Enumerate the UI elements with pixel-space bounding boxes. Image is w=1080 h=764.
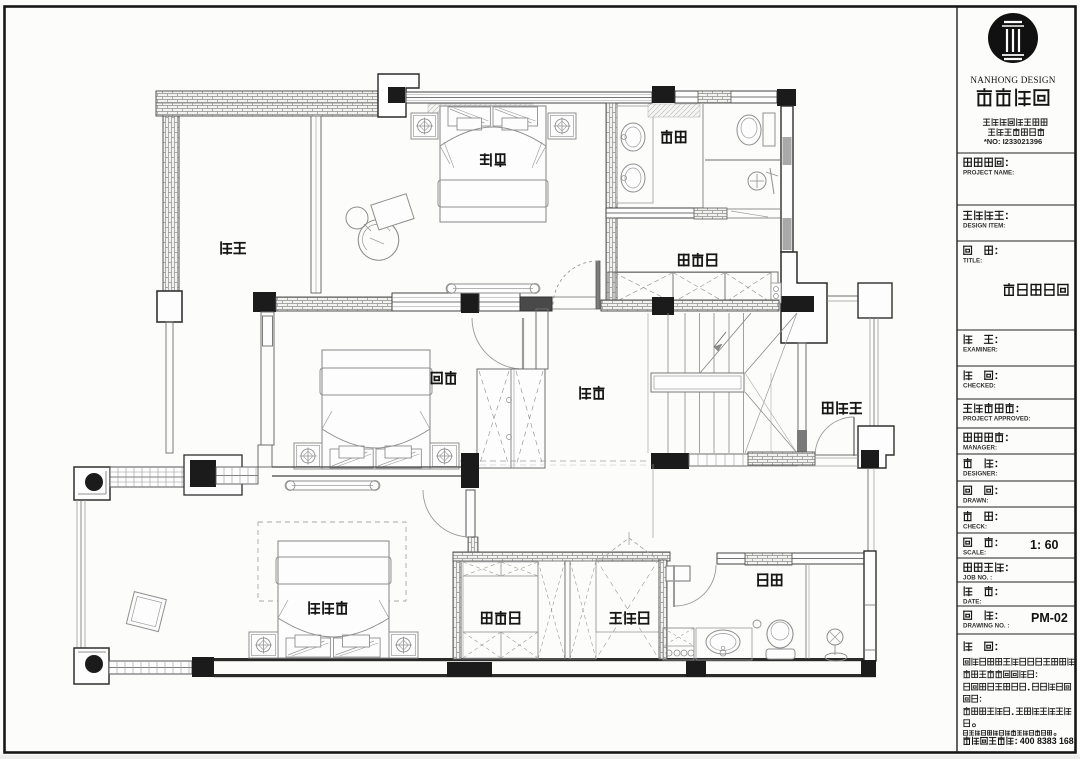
- svg-text:EXAMINER:: EXAMINER:: [963, 347, 998, 354]
- svg-text:PROJECT APPROVED:: PROJECT APPROVED:: [963, 416, 1031, 423]
- svg-text:CHECKED:: CHECKED:: [963, 383, 996, 390]
- svg-text:DESIGNER:: DESIGNER:: [963, 471, 997, 478]
- svg-text:SCALE:: SCALE:: [963, 550, 986, 557]
- svg-text:*NO: I233021396: *NO: I233021396: [984, 137, 1042, 146]
- svg-text:MANAGER:: MANAGER:: [963, 445, 997, 452]
- svg-text:DRAWING NO. :: DRAWING NO. :: [963, 623, 1009, 630]
- svg-text:DRAWN:: DRAWN:: [963, 498, 988, 505]
- svg-text:CHECK:: CHECK:: [963, 524, 987, 531]
- svg-text:DATE:: DATE:: [963, 599, 981, 606]
- svg-text:NANHONG DESIGN: NANHONG DESIGN: [970, 75, 1055, 85]
- svg-text:DESIGN ITEM:: DESIGN ITEM:: [963, 223, 1005, 230]
- svg-text:TITLE:: TITLE:: [963, 258, 982, 265]
- svg-text:1: 60: 1: 60: [1030, 538, 1059, 552]
- svg-text:PROJECT NAME:: PROJECT NAME:: [963, 170, 1014, 177]
- svg-text:400 8383 168: 400 8383 168: [1020, 736, 1074, 746]
- svg-text:PM-02: PM-02: [1031, 611, 1068, 625]
- svg-text:JOB NO. :: JOB NO. :: [963, 575, 992, 582]
